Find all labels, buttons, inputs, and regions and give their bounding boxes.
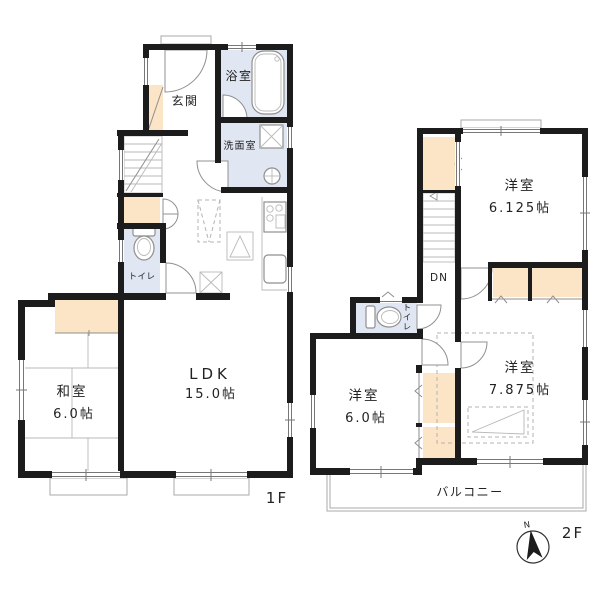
floor1-label: 1F [266,489,288,507]
washitsu-label: 和室 [57,383,88,400]
attic-ladder [468,407,528,437]
washitsu-window-sill [50,478,127,495]
ldk-side-window [285,403,295,437]
toilet1f-window [118,240,124,262]
kitchen-sink [264,255,286,283]
toilet2f-label: トイレ [401,303,411,332]
ldk-bottom-window [176,469,247,481]
genkan-side-window [143,58,149,85]
closet-2f-a-opening [455,142,461,186]
balcony-label: バルコニー [436,485,503,499]
room-a-size-label: 6.125帖 [489,201,551,216]
stairs-down-label: DN [430,272,448,284]
room-b-label: 洋室 [349,387,380,404]
washitsu-bottom-window [52,469,120,481]
stove [264,202,286,232]
pantry-dashed [198,200,220,242]
room-c-door [461,342,487,368]
hall-closet [124,197,160,223]
compass-north-label: N [523,520,531,531]
ldk-door [166,263,196,293]
floor2-plan: 洋室 6.125帖 DN トイレ 洋室 6.0帖 洋室 7.875帖 バルコニー… [310,120,590,565]
toilet-2f-fixture [366,306,401,328]
refrigerator-space [227,232,253,260]
room-a-label: 洋室 [505,177,536,194]
toilet-1f-fixture [133,227,155,260]
floorplan-drawing: 玄関 浴室 洗面室 トイレ 和室 6.0帖 LDK 15.0帖 1F [0,0,600,600]
bathtub [252,51,284,114]
tatami-lines [25,330,124,471]
room-b-bottom-window [350,466,413,478]
stairs-window [118,150,124,180]
toilet2f-slide-door [380,292,402,303]
stairs-2f [423,192,455,262]
room-a-door [461,268,492,299]
room-c-side-window-1 [582,310,588,347]
toilet1f-label: トイレ [128,272,155,282]
toilet2f-door [417,305,441,329]
ldk-label: LDK [189,365,231,383]
dk-side-window [287,267,293,292]
room-b-size-label: 6.0帖 [345,411,387,426]
ldk-size-label: 15.0帖 [185,387,237,402]
washroom-window [287,127,293,148]
appliance-space [200,272,222,293]
washitsu-closet [55,300,124,333]
closet-2f-b [493,268,528,297]
bathroom-label: 浴室 [225,68,252,83]
entrance-porch [161,36,211,44]
floorplan-page: 玄関 浴室 洗面室 トイレ 和室 6.0帖 LDK 15.0帖 1F [0,0,600,600]
washitsu-size-label: 6.0帖 [53,407,95,422]
stairs-1f [124,136,162,193]
room-b-door [422,339,448,365]
closet-2f-d [423,373,455,423]
closet-2f-a [423,137,455,190]
compass: N [513,518,551,565]
room-a-side-window [580,177,590,250]
room-c-size-label: 7.875帖 [489,383,551,398]
kitchen-counter [198,197,287,293]
washing-machine-pan [260,125,283,148]
floor2-label: 2F [562,524,584,542]
room-c-label: 洋室 [505,359,536,376]
genkan-label: 玄関 [171,93,198,108]
floor1-plan: 玄関 浴室 洗面室 トイレ 和室 6.0帖 LDK 15.0帖 1F [16,36,295,507]
closet-2f-c [532,268,582,297]
washroom-sink [264,168,280,184]
washitsu-left-window [16,360,27,420]
room-b-left-window [310,395,316,428]
washroom-label: 洗面室 [224,139,257,152]
room-c-bottom-window [477,456,543,468]
room-c-side-window-2 [580,400,590,445]
